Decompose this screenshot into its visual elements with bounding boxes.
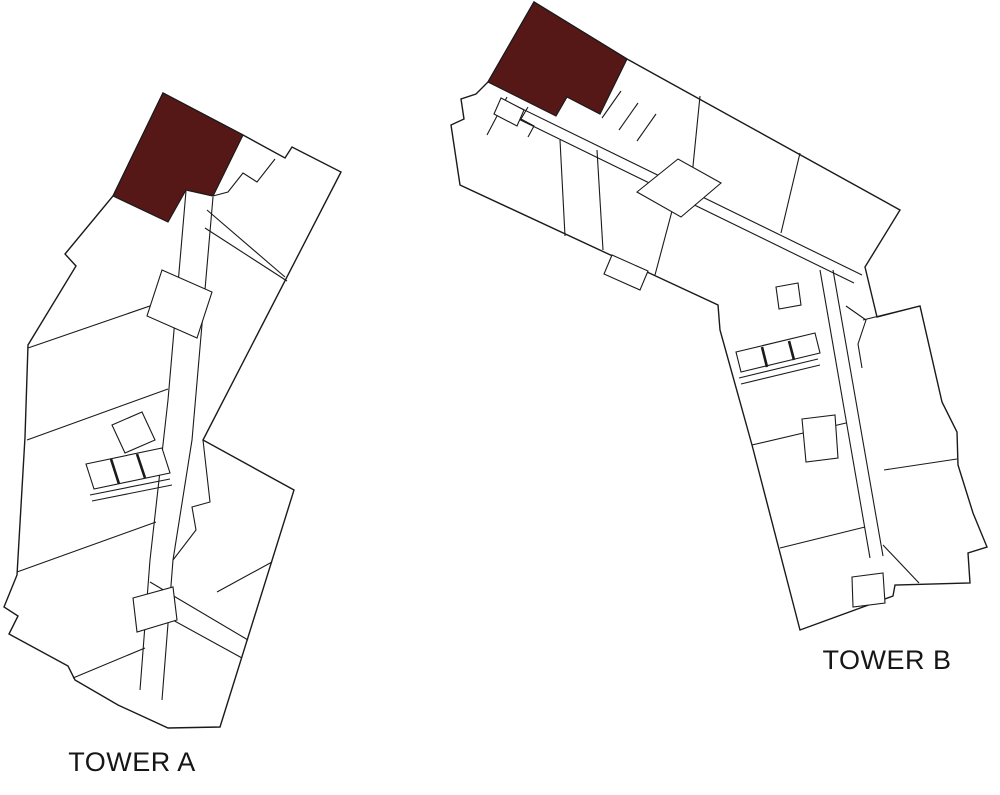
tower-a-label: TOWER A xyxy=(68,747,196,777)
tower-b-label: TOWER B xyxy=(822,645,951,675)
tower-b-core xyxy=(852,573,885,607)
plans-root xyxy=(4,2,987,728)
floorplan-canvas: TOWER A TOWER B xyxy=(0,0,1000,795)
keyplan-page: TOWER A TOWER B xyxy=(0,0,1000,795)
tower-a-plan xyxy=(4,93,341,728)
tower-b-core xyxy=(776,283,801,309)
tower-b-core xyxy=(802,415,838,462)
tower-b-plan xyxy=(451,2,987,630)
